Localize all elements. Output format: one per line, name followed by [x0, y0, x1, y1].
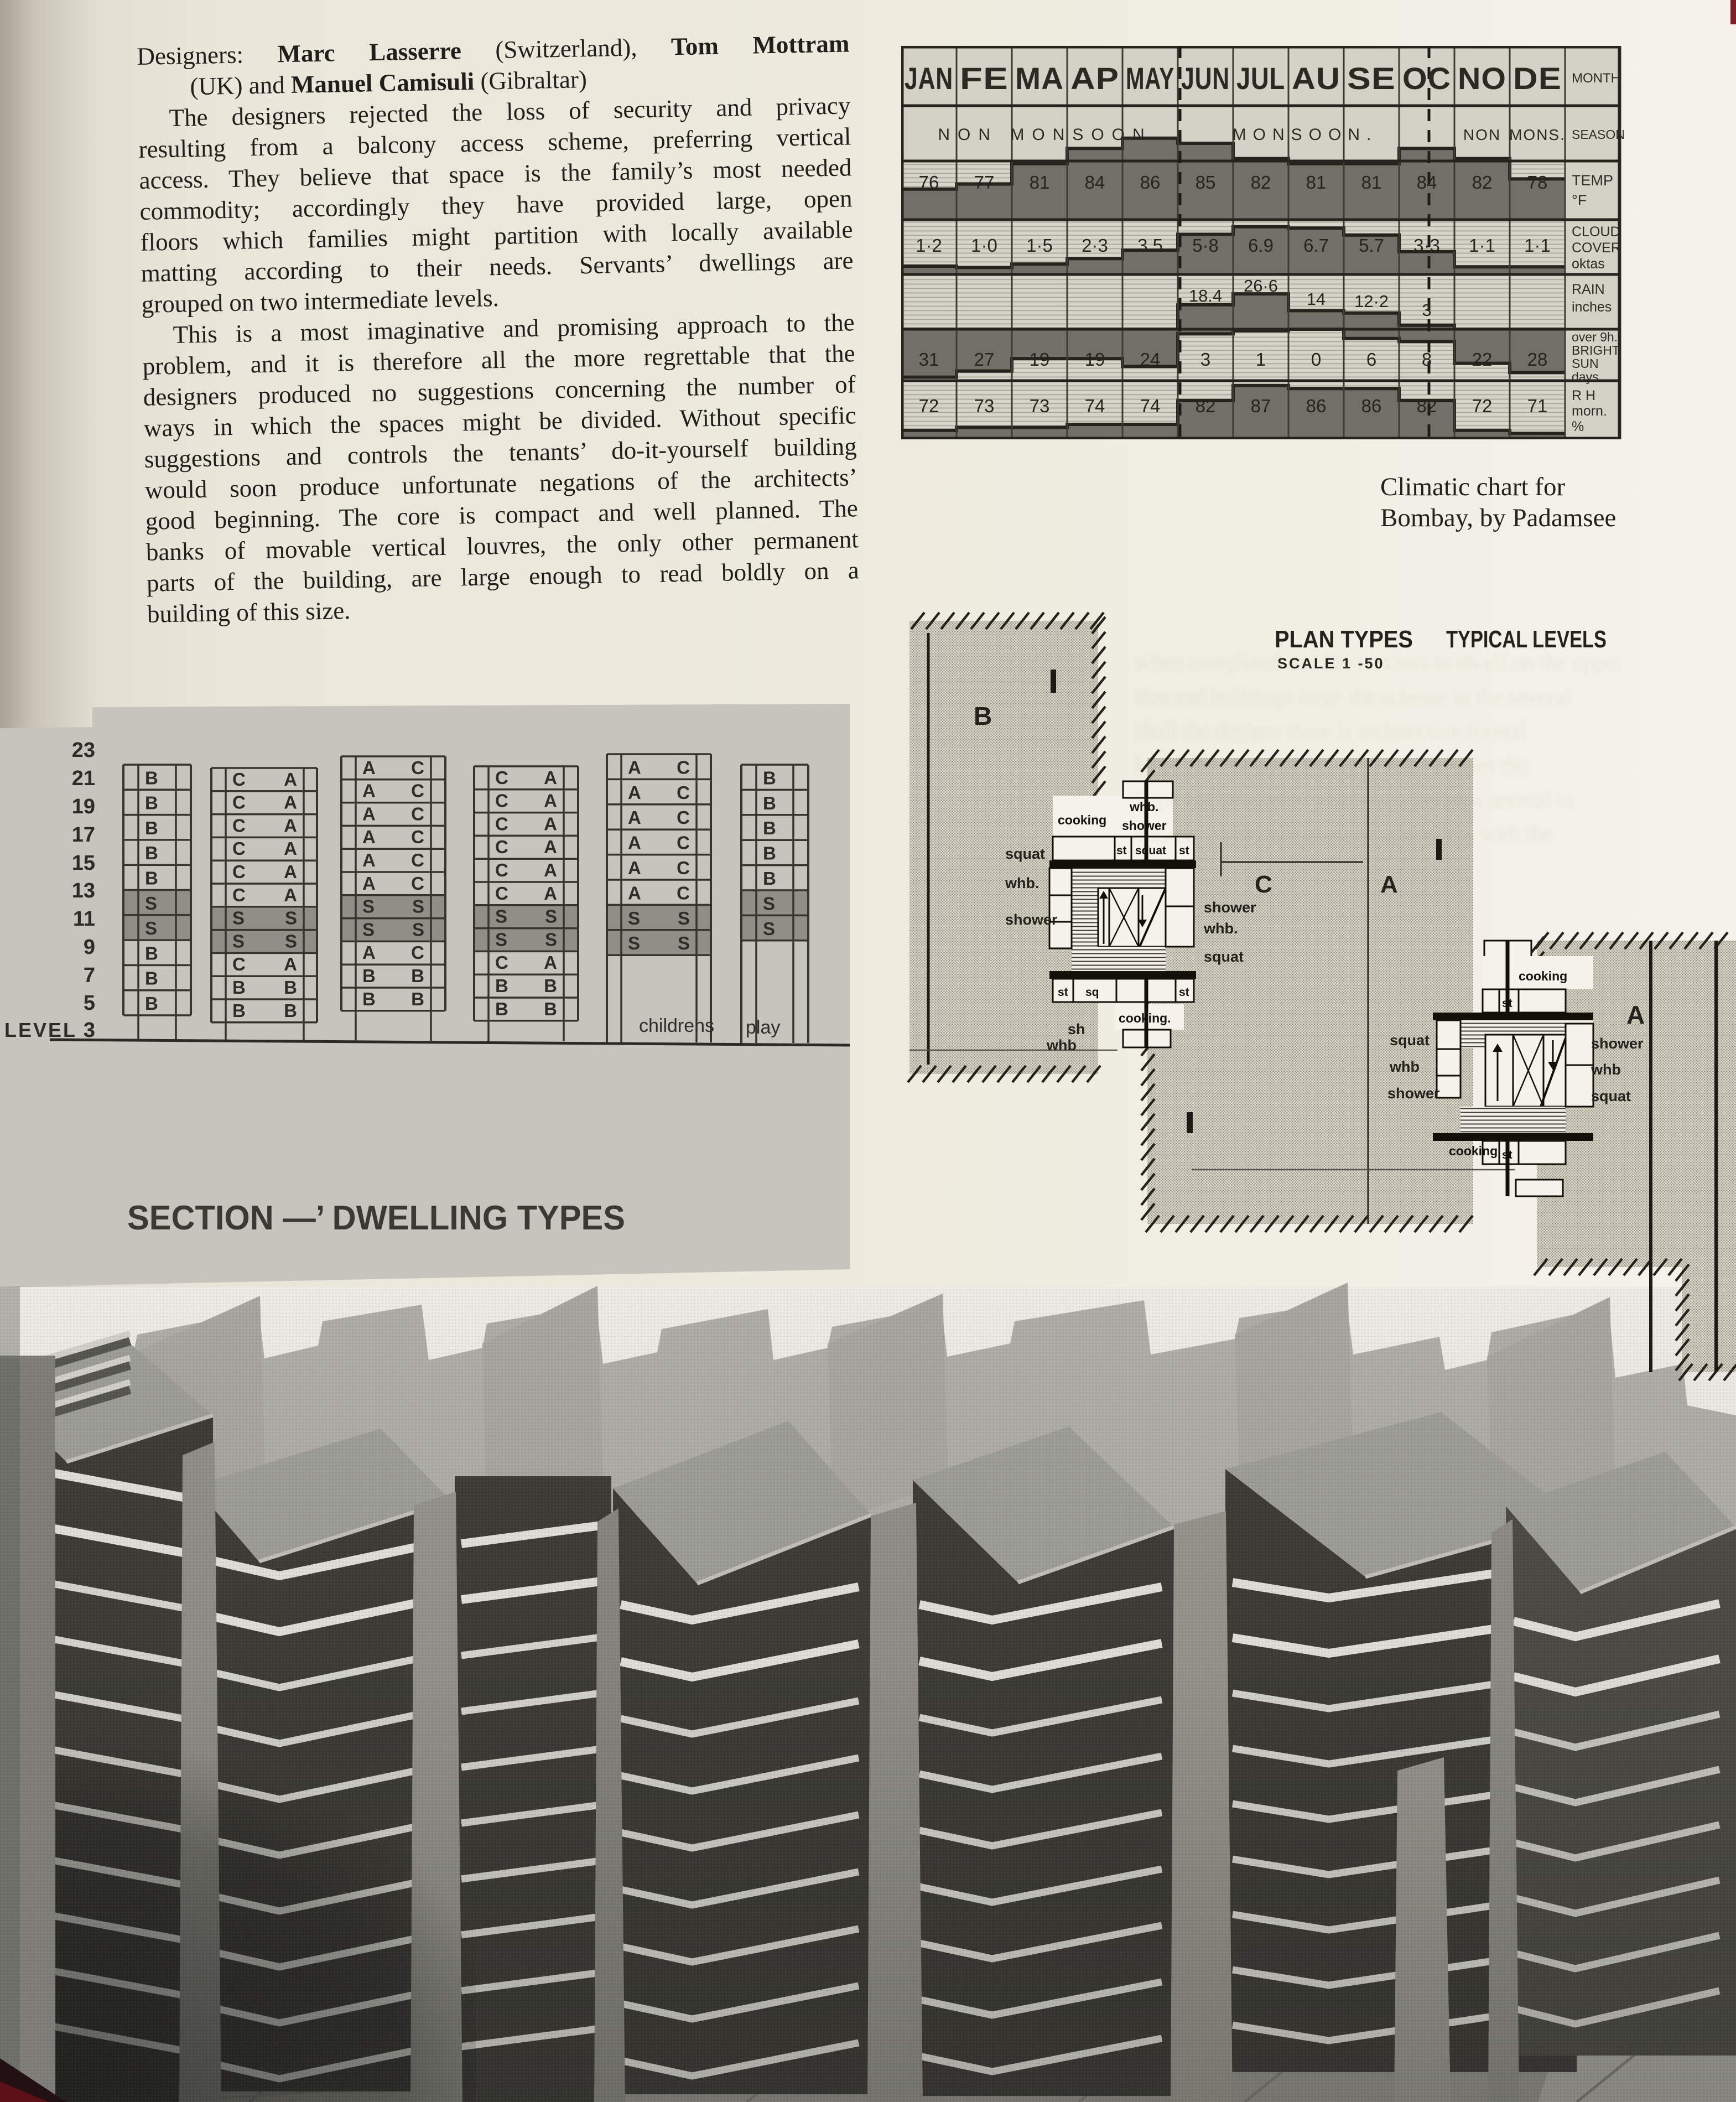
svg-text:A: A — [362, 803, 376, 824]
svg-text:A: A — [284, 885, 297, 905]
svg-text:squat: squat — [1591, 1088, 1631, 1104]
svg-text:87: 87 — [1251, 396, 1271, 416]
svg-text:whb.: whb. — [1203, 920, 1238, 937]
svg-text:C: C — [1255, 871, 1272, 898]
svg-text:B: B — [763, 868, 776, 889]
svg-text:C: C — [495, 860, 508, 880]
svg-text:A: A — [284, 861, 297, 882]
svg-text:B: B — [362, 966, 376, 986]
svg-text:that the committee planned and: that the committee planned and access wi… — [1135, 821, 1552, 846]
svg-text:85: 85 — [1196, 172, 1216, 193]
svg-text:A: A — [362, 781, 376, 801]
svg-text:JAN: JAN — [905, 61, 953, 96]
svg-text:73: 73 — [1030, 396, 1050, 416]
svg-text:81: 81 — [1030, 172, 1050, 193]
svg-text:AP: AP — [1070, 61, 1119, 96]
svg-text:play: play — [746, 1017, 780, 1038]
svg-text:morn.: morn. — [1572, 403, 1607, 419]
svg-text:C: C — [232, 769, 246, 790]
svg-text:B: B — [232, 1000, 246, 1021]
svg-text:A: A — [284, 838, 297, 859]
svg-text:C: C — [677, 757, 690, 777]
svg-text:9: 9 — [84, 936, 95, 959]
svg-text:SE: SE — [1347, 61, 1396, 96]
svg-text:B: B — [145, 943, 158, 963]
svg-text:A: A — [284, 954, 297, 974]
svg-text:that and buildings large the s: that and buildings large the scheme in t… — [1135, 684, 1571, 709]
svg-text:78: 78 — [1527, 172, 1548, 193]
svg-text:S: S — [362, 919, 375, 940]
svg-text:A: A — [628, 858, 641, 878]
svg-text:72: 72 — [1472, 396, 1493, 416]
svg-text:C: C — [411, 827, 424, 847]
svg-text:S: S — [412, 919, 424, 940]
svg-text:A: A — [1626, 1000, 1645, 1029]
svg-text:FE: FE — [960, 61, 1009, 96]
svg-text:21: 21 — [72, 767, 95, 790]
svg-text:B: B — [232, 977, 246, 998]
svg-text:A: A — [544, 883, 557, 904]
svg-text:3: 3 — [1422, 300, 1431, 320]
svg-text:86: 86 — [1361, 396, 1382, 416]
svg-text:12·2: 12·2 — [1354, 292, 1389, 311]
svg-text:B: B — [145, 793, 158, 813]
svg-text:8: 8 — [1422, 349, 1432, 370]
svg-text:A: A — [362, 942, 376, 963]
svg-text:74: 74 — [1085, 396, 1105, 416]
svg-text:hope and designers which may p: hope and designers which may perhaps sev… — [1135, 787, 1573, 812]
svg-text:S: S — [495, 906, 507, 927]
svg-text:22: 22 — [1472, 349, 1493, 370]
svg-text:S: S — [495, 929, 507, 949]
svg-text:MONS.: MONS. — [1509, 126, 1566, 143]
svg-text:A: A — [544, 813, 557, 834]
svg-text:1·2: 1·2 — [916, 235, 942, 256]
svg-text:st: st — [1179, 986, 1189, 999]
svg-text:st: st — [1116, 844, 1127, 857]
svg-text:S: S — [763, 918, 775, 939]
svg-text:6: 6 — [1366, 349, 1376, 370]
svg-text:B: B — [411, 989, 424, 1009]
svg-text:cooking: cooking — [1519, 969, 1567, 983]
svg-text:2·3: 2·3 — [1082, 235, 1108, 256]
svg-text:71: 71 — [1527, 396, 1548, 416]
svg-text:82: 82 — [1196, 396, 1216, 416]
svg-text:C: C — [677, 807, 690, 828]
svg-text:B: B — [544, 999, 557, 1019]
svg-text:82: 82 — [1251, 172, 1271, 193]
svg-text:S: S — [145, 893, 157, 914]
svg-text:C: C — [411, 757, 424, 778]
svg-text:C: C — [677, 883, 690, 903]
svg-text:76: 76 — [919, 172, 939, 193]
svg-text:A: A — [544, 952, 557, 973]
svg-text:C: C — [411, 803, 424, 824]
svg-text:C: C — [232, 954, 246, 974]
svg-text:A: A — [544, 837, 557, 857]
svg-text:73: 73 — [974, 396, 995, 416]
svg-text:S: S — [232, 908, 245, 928]
svg-text:A: A — [362, 850, 376, 870]
svg-text:C: C — [411, 942, 424, 963]
svg-text:C: C — [495, 883, 508, 904]
svg-text:C: C — [495, 813, 508, 834]
svg-text:A: A — [1380, 871, 1398, 898]
svg-text:5·8: 5·8 — [1192, 235, 1219, 256]
svg-text:A: A — [362, 873, 376, 894]
svg-text:over 9h.: over 9h. — [1572, 330, 1618, 344]
svg-text:JUN: JUN — [1181, 61, 1230, 96]
svg-text:C: C — [495, 837, 508, 857]
svg-text:84: 84 — [1417, 172, 1437, 193]
svg-text:B: B — [763, 818, 776, 838]
svg-text:C: C — [495, 791, 508, 811]
svg-text:13: 13 — [72, 879, 95, 902]
svg-text:MONSOON.: MONSOON. — [1233, 126, 1378, 144]
svg-text:whb: whb — [1591, 1061, 1621, 1078]
svg-text:B: B — [974, 702, 992, 730]
svg-text:S: S — [545, 929, 557, 949]
svg-text:A: A — [628, 883, 641, 903]
svg-text:B: B — [544, 975, 557, 996]
svg-text:26·6: 26·6 — [1244, 276, 1278, 295]
svg-text:SUN: SUN — [1572, 356, 1599, 371]
svg-text:1·1: 1·1 — [1469, 235, 1495, 256]
svg-text:TEMP: TEMP — [1572, 172, 1613, 189]
svg-text:S: S — [678, 933, 690, 953]
svg-text:1·1: 1·1 — [1524, 235, 1551, 256]
svg-text:14: 14 — [1307, 289, 1326, 309]
svg-text:S: S — [678, 908, 690, 928]
svg-text:S: S — [285, 931, 297, 951]
svg-text:S: S — [545, 906, 557, 927]
svg-text:A: A — [544, 791, 557, 811]
svg-text:19: 19 — [72, 795, 95, 818]
svg-text:childrens: childrens — [639, 1015, 714, 1036]
svg-text:19: 19 — [1085, 349, 1105, 370]
svg-text:large all courtyard floors so: large all courtyard floors so that famil… — [1135, 752, 1527, 777]
svg-text:23: 23 — [72, 739, 95, 762]
svg-text:shower: shower — [1204, 899, 1256, 916]
svg-text:C: C — [495, 952, 508, 973]
svg-text:RAIN: RAIN — [1572, 282, 1605, 297]
svg-text:C: C — [232, 815, 246, 835]
svg-text:81: 81 — [1306, 172, 1327, 193]
svg-text:A: A — [628, 807, 641, 828]
svg-text:B: B — [145, 993, 158, 1014]
svg-text:S: S — [628, 908, 640, 928]
svg-text:C: C — [411, 850, 424, 870]
svg-text:B: B — [763, 843, 776, 864]
svg-text:6.9: 6.9 — [1248, 235, 1274, 256]
svg-text:3·3: 3·3 — [1413, 235, 1440, 256]
svg-text:B: B — [495, 975, 508, 996]
svg-text:86: 86 — [1140, 172, 1161, 193]
svg-text:11: 11 — [73, 907, 95, 931]
svg-text:86: 86 — [1306, 396, 1327, 416]
svg-text:shower: shower — [1591, 1035, 1644, 1052]
svg-text:NO: NO — [1458, 61, 1506, 96]
svg-text:B: B — [284, 1000, 297, 1021]
svg-text:shower: shower — [1005, 911, 1058, 928]
svg-text:S: S — [285, 908, 297, 928]
svg-text:S: S — [763, 893, 775, 914]
svg-text:6.7: 6.7 — [1303, 235, 1329, 256]
svg-text:cooking: cooking — [1449, 1144, 1498, 1158]
svg-text:C: C — [411, 781, 424, 801]
svg-text:C: C — [232, 792, 246, 813]
svg-text:B: B — [763, 767, 776, 788]
svg-text:A: A — [544, 860, 557, 880]
svg-text:SEASON: SEASON — [1572, 127, 1625, 142]
svg-text:C: C — [411, 873, 424, 894]
svg-text:82: 82 — [1417, 396, 1437, 416]
svg-text:1: 1 — [1256, 349, 1266, 370]
svg-text:shall the designs there is arc: shall the designs there is architecture … — [1135, 718, 1526, 743]
svg-text:AU: AU — [1292, 61, 1340, 96]
svg-text:CLOUD: CLOUD — [1572, 224, 1620, 240]
svg-text:84: 84 — [1085, 172, 1105, 193]
svg-text:72: 72 — [919, 396, 939, 416]
svg-text:cooking: cooking — [1058, 813, 1106, 827]
svg-text:15: 15 — [72, 852, 95, 875]
svg-text:st: st — [1058, 986, 1068, 999]
svg-text:sh: sh — [1068, 1021, 1085, 1037]
svg-text:BRIGHT: BRIGHT — [1572, 343, 1620, 357]
svg-text:squat: squat — [1135, 844, 1166, 857]
svg-text:C: C — [232, 838, 246, 859]
svg-text:S: S — [628, 933, 640, 953]
svg-text:C: C — [677, 858, 690, 878]
svg-text:B: B — [145, 843, 158, 863]
svg-text:JUL: JUL — [1236, 61, 1285, 96]
svg-text:82: 82 — [1472, 172, 1493, 193]
svg-text:B: B — [145, 818, 158, 838]
svg-text:NON MONSOON: NON MONSOON — [938, 126, 1152, 144]
svg-text:B: B — [145, 968, 158, 989]
svg-text:R H: R H — [1572, 388, 1595, 403]
svg-text:5.7: 5.7 — [1359, 235, 1384, 256]
svg-text:3.5: 3.5 — [1137, 235, 1163, 256]
svg-text:A: A — [362, 757, 376, 778]
svg-text:MONTH: MONTH — [1572, 71, 1620, 86]
svg-text:MA: MA — [1015, 61, 1064, 96]
svg-text:squat: squat — [1390, 1032, 1430, 1049]
svg-text:C: C — [677, 782, 690, 803]
svg-text:squat: squat — [1204, 948, 1244, 965]
svg-text:oktas: oktas — [1572, 256, 1605, 272]
svg-text:B: B — [284, 977, 297, 998]
svg-text:18.4: 18.4 — [1189, 286, 1222, 305]
svg-text:5: 5 — [84, 992, 95, 1015]
svg-text:A: A — [628, 833, 641, 853]
svg-text:1·5: 1·5 — [1026, 235, 1053, 256]
svg-text:A: A — [544, 767, 557, 788]
svg-text:B: B — [411, 966, 424, 986]
svg-text:S: S — [412, 896, 424, 917]
svg-text:S: S — [232, 931, 245, 951]
svg-text:C: C — [495, 767, 508, 788]
svg-text:B: B — [362, 989, 376, 1009]
svg-text:whb.: whb. — [1005, 875, 1039, 891]
svg-text:when completed and the servant: when completed and the servants to dwell… — [1135, 650, 1623, 674]
svg-text:19: 19 — [1030, 349, 1050, 370]
svg-text:24: 24 — [1140, 349, 1161, 370]
svg-text:days: days — [1572, 370, 1599, 384]
svg-text:%: % — [1572, 419, 1584, 434]
svg-text:17: 17 — [72, 823, 95, 847]
svg-text:MAY: MAY — [1126, 61, 1174, 96]
svg-text:74: 74 — [1140, 396, 1161, 416]
svg-text:81: 81 — [1361, 172, 1382, 193]
svg-text:LEVEL: LEVEL — [4, 1019, 77, 1041]
svg-text:B: B — [495, 999, 508, 1019]
svg-text:DE: DE — [1513, 61, 1562, 96]
svg-text:C: C — [232, 861, 246, 882]
svg-text:7: 7 — [84, 964, 95, 987]
svg-text:st: st — [1179, 844, 1189, 857]
svg-text:A: A — [362, 827, 376, 847]
svg-text:squat: squat — [1005, 845, 1045, 862]
svg-text:PLAN TYPES: PLAN TYPES — [1275, 626, 1413, 653]
svg-text:whb: whb — [1389, 1058, 1420, 1075]
svg-text:S: S — [145, 918, 157, 938]
svg-text:C: C — [232, 885, 246, 905]
svg-text:A: A — [284, 769, 297, 790]
svg-text:A: A — [628, 782, 641, 803]
svg-text:SECTION —’ DWELLING TYPES: SECTION —’ DWELLING TYPES — [127, 1199, 625, 1237]
svg-text:28: 28 — [1527, 349, 1548, 370]
svg-text:S: S — [362, 896, 375, 917]
svg-text:3: 3 — [84, 1019, 95, 1042]
svg-text:°F: °F — [1572, 192, 1587, 209]
svg-text:shower: shower — [1387, 1085, 1440, 1102]
svg-text:B: B — [145, 767, 158, 788]
svg-text:A: A — [284, 815, 297, 835]
svg-text:27: 27 — [974, 349, 995, 370]
svg-text:77: 77 — [974, 172, 995, 193]
svg-text:3: 3 — [1200, 349, 1210, 370]
svg-text:COVER: COVER — [1572, 240, 1621, 256]
svg-text:inches: inches — [1572, 299, 1612, 315]
svg-text:whb: whb — [1046, 1037, 1077, 1053]
svg-text:0: 0 — [1311, 349, 1321, 370]
svg-text:B: B — [763, 793, 776, 813]
svg-text:1·0: 1·0 — [971, 235, 997, 256]
svg-text:A: A — [628, 757, 641, 777]
svg-text:OC: OC — [1402, 61, 1451, 96]
svg-text:C: C — [677, 833, 690, 853]
svg-text:sq: sq — [1085, 986, 1099, 999]
svg-text:31: 31 — [919, 349, 939, 370]
svg-text:A: A — [284, 792, 297, 813]
svg-text:TYPICAL LEVELS: TYPICAL LEVELS — [1446, 626, 1607, 653]
svg-text:NON: NON — [1463, 126, 1501, 143]
svg-text:B: B — [145, 868, 158, 889]
